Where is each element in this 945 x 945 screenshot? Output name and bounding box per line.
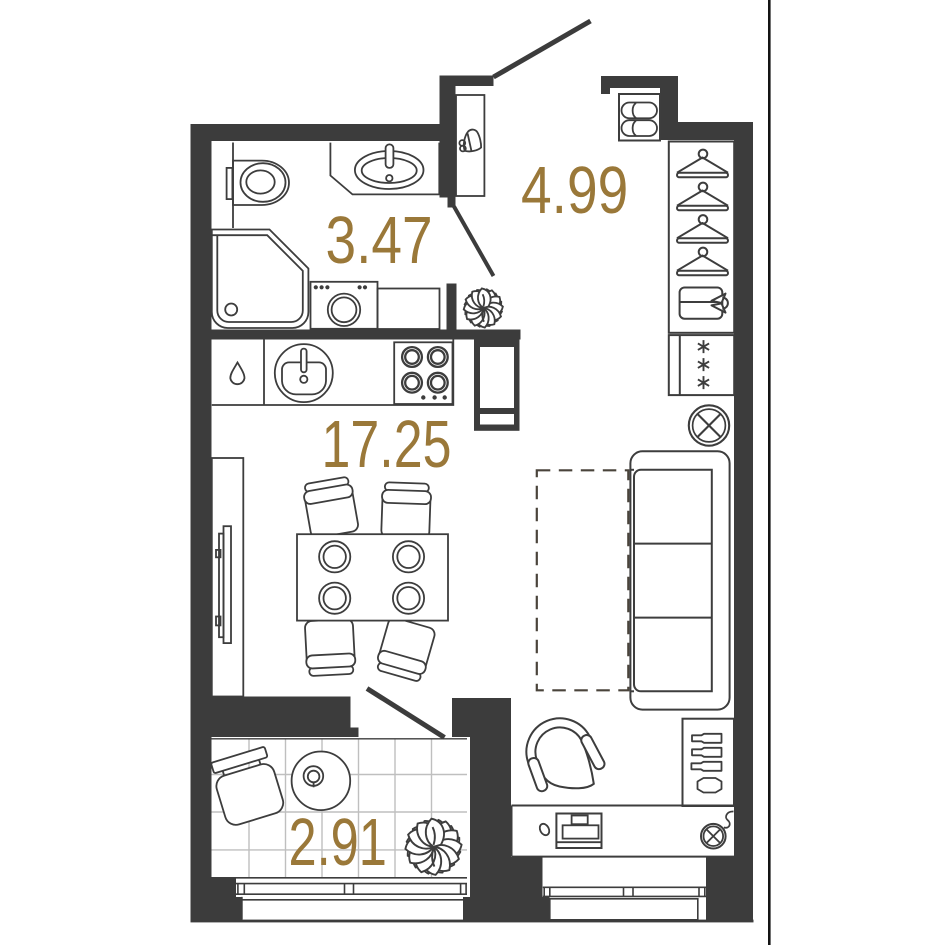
svg-text:4.99: 4.99 bbox=[521, 153, 628, 227]
svg-text:3.47: 3.47 bbox=[326, 203, 433, 277]
svg-text:17.25: 17.25 bbox=[322, 407, 452, 482]
svg-text:2.91: 2.91 bbox=[289, 805, 387, 879]
